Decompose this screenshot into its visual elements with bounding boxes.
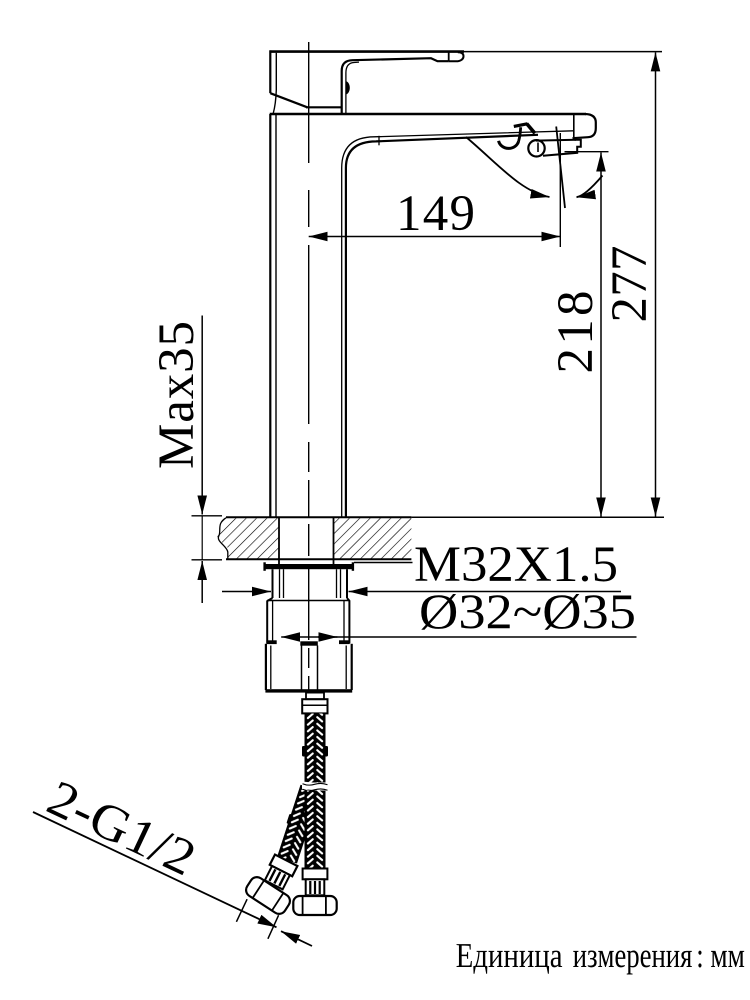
svg-text:149: 149 <box>396 186 475 242</box>
svg-text:277: 277 <box>602 246 658 323</box>
svg-text:Ø32~Ø35: Ø32~Ø35 <box>419 583 636 639</box>
svg-text:2-G1/2: 2-G1/2 <box>39 770 204 887</box>
svg-text:218: 218 <box>548 291 604 374</box>
svg-text:Max35: Max35 <box>149 321 205 469</box>
